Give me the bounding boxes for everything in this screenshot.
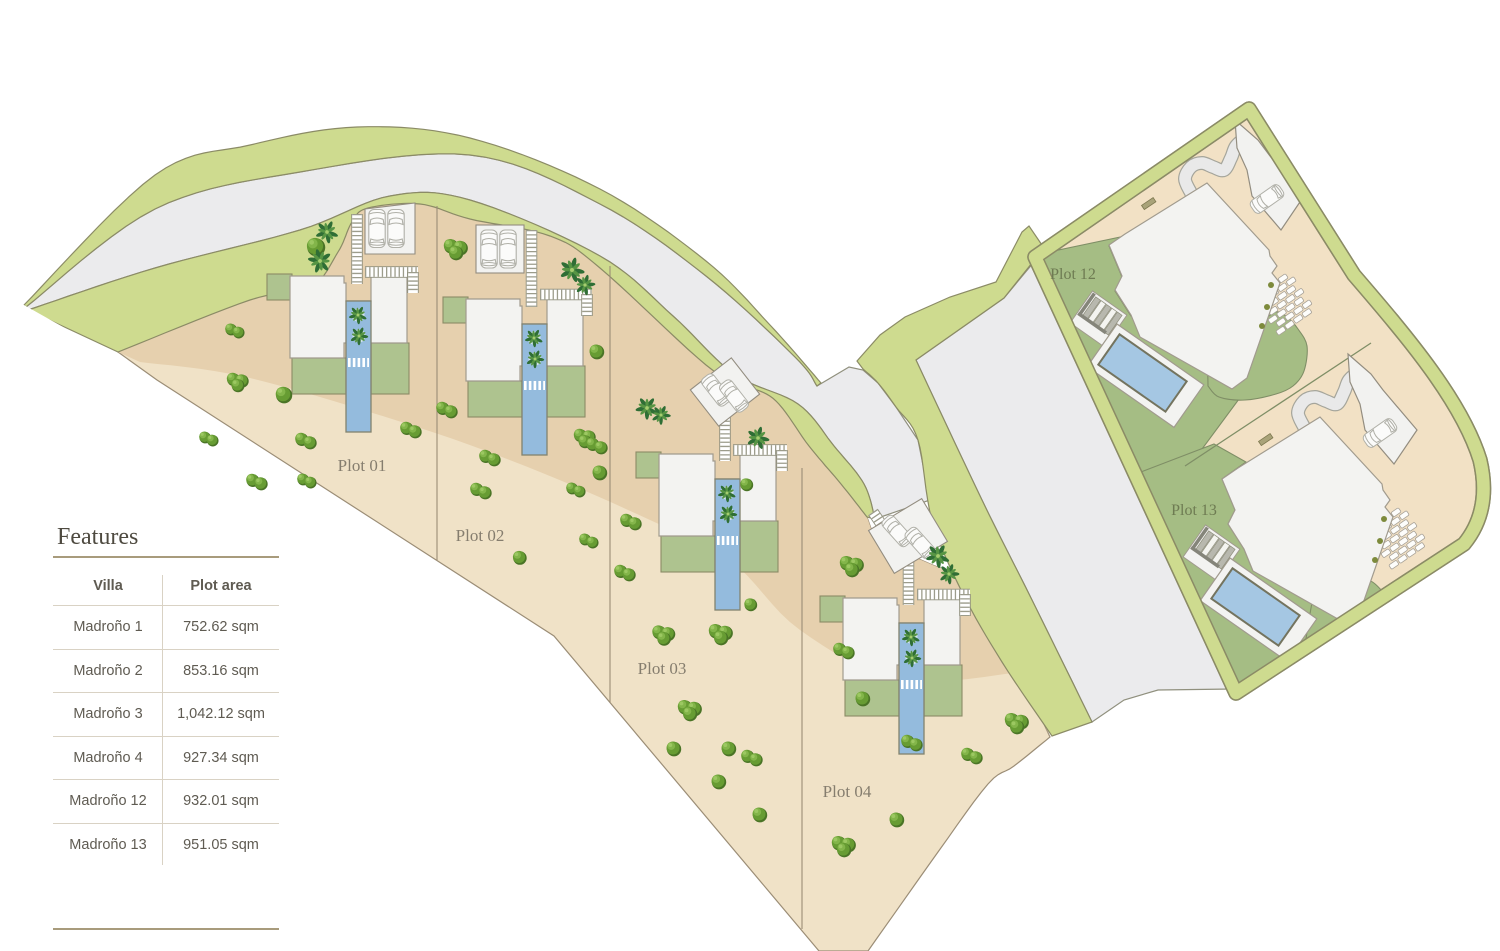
svg-text:Plot 02: Plot 02 bbox=[456, 526, 505, 545]
svg-text:Plot 01: Plot 01 bbox=[338, 456, 387, 475]
svg-text:Plot 13: Plot 13 bbox=[1171, 502, 1217, 519]
svg-text:Plot 12: Plot 12 bbox=[1050, 266, 1096, 283]
svg-text:Plot 04: Plot 04 bbox=[823, 782, 872, 801]
svg-text:Plot 03: Plot 03 bbox=[638, 659, 687, 678]
